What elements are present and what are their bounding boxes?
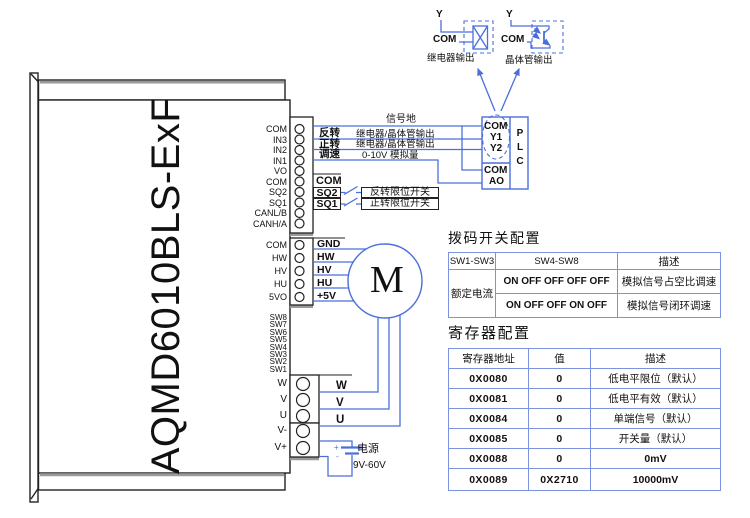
battery-minus-sign: - xyxy=(336,453,339,461)
reg-addr-2: 0X0084 xyxy=(449,409,529,429)
reg-header-address: 寄存器地址 xyxy=(449,349,529,369)
plc-ao-label: AO xyxy=(489,177,504,187)
reg-addr-0: 0X0080 xyxy=(449,369,529,389)
reg-val-2: 0 xyxy=(529,409,591,429)
hall-label-hv: HV xyxy=(317,265,332,276)
phase-label-v: V xyxy=(336,398,344,409)
pin-label-vo: VO xyxy=(240,166,287,176)
reverse-desc: 继电器/晶体管输出 xyxy=(356,129,435,140)
pin-label-sq2: SQ2 xyxy=(240,187,287,197)
reg-header-value: 值 xyxy=(529,349,591,369)
dip-cell-desc-row2: 模拟信号闭环调速 xyxy=(618,294,721,318)
signal-ground-label: 信号地 xyxy=(386,114,416,125)
dip-cell-sw-row1: ON OFF OFF OFF OFF xyxy=(496,270,618,294)
plc-com1-label: COM xyxy=(484,122,507,132)
plc-y1-label: Y1 xyxy=(490,133,502,143)
motor-letter: M xyxy=(370,261,400,299)
sq2-switch-desc: 反转限位开关 xyxy=(361,187,439,199)
dip-cell-desc-row1: 模拟信号占空比调速 xyxy=(618,270,721,294)
plc-com2-label: COM xyxy=(484,166,507,176)
pin-label-vminus: V- xyxy=(250,425,287,436)
com-wire-label: COM xyxy=(316,176,342,187)
dip-header-sw48: SW4-SW8 xyxy=(496,253,618,270)
reg-addr-3: 0X0085 xyxy=(449,429,529,449)
reg-val-4: 0 xyxy=(529,449,591,469)
device-model-label: AQMD6010BLS-ExF xyxy=(143,86,189,486)
pin-label-w: W xyxy=(250,378,287,389)
hall-label-5v: +5V xyxy=(317,291,336,302)
arrow-to-transistor xyxy=(501,69,519,111)
phase-wires xyxy=(319,316,400,427)
pin-label-canha: CANH/A xyxy=(240,219,287,229)
hall-label-hu: HU xyxy=(317,278,332,289)
dip-table: SW1-SW3 SW4-SW8 描述 额定电流 ON OFF OFF OFF O… xyxy=(448,252,721,318)
reg-val-0: 0 xyxy=(529,369,591,389)
pin-label-vplus: V+ xyxy=(250,442,287,453)
sq1-wire-label: SQ1 xyxy=(313,198,341,210)
transistor-com-label: COM xyxy=(501,35,524,45)
pin-label-5vo: 5VO xyxy=(240,292,287,302)
reg-addr-1: 0X0081 xyxy=(449,389,529,409)
reg-val-1: 0 xyxy=(529,389,591,409)
reg-addr-5: 0X0089 xyxy=(449,469,529,491)
pin-label-v: V xyxy=(250,394,287,405)
output-type-arrows xyxy=(478,69,519,111)
pin-label-hw: HW xyxy=(240,253,287,263)
reg-desc-2: 单端信号（默认） xyxy=(591,409,721,429)
forward-desc: 继电器/晶体管输出 xyxy=(356,139,435,150)
sq1-switch-desc: 正转限位开关 xyxy=(361,198,439,210)
pin-label-in3: IN3 xyxy=(240,135,287,145)
dip-header-sw13: SW1-SW3 xyxy=(449,253,496,270)
opto-light-arrow-1 xyxy=(535,29,541,34)
dip-table-title: 拨码开关配置 xyxy=(448,228,541,248)
pin-label-hv: HV xyxy=(240,266,287,276)
battery-plus-sign: + xyxy=(334,444,339,452)
transistor-y-label: Y xyxy=(506,10,513,20)
sq2-wire-label: SQ2 xyxy=(313,187,341,199)
reg-desc-3: 开关量（默认） xyxy=(591,429,721,449)
pin-label-sq1: SQ1 xyxy=(240,198,287,208)
reg-desc-5: 10000mV xyxy=(591,469,721,491)
reg-val-3: 0 xyxy=(529,429,591,449)
dip-cell-rated-current: 额定电流 xyxy=(449,270,496,318)
relay-y-label: Y xyxy=(436,10,443,20)
pin-label-com3: COM xyxy=(240,240,287,250)
reg-header-desc: 描述 xyxy=(591,349,721,369)
reg-table-title: 寄存器配置 xyxy=(448,322,531,343)
phase-label-u: U xyxy=(336,415,344,426)
power-range-label: 9V-60V xyxy=(353,460,386,471)
phase-label-w: W xyxy=(336,381,347,392)
reg-addr-4: 0X0088 xyxy=(449,449,529,469)
pin-label-sw1: SW1 xyxy=(255,366,287,374)
dip-cell-sw-row2: ON OFF OFF ON OFF xyxy=(496,294,618,318)
plc-y2-label: Y2 xyxy=(490,144,502,154)
reg-desc-1: 低电平有效（默认） xyxy=(591,389,721,409)
pin-label-u: U xyxy=(250,410,287,421)
pin-label-in1: IN1 xyxy=(240,156,287,166)
register-table: 寄存器地址 值 描述 0X0080 0 低电平限位（默认） 0X0081 0 低… xyxy=(448,348,721,491)
relay-coil-cross xyxy=(473,26,488,49)
pin-label-in2: IN2 xyxy=(240,145,287,155)
transistor-output-caption: 晶体管输出 xyxy=(505,55,553,66)
arrow-to-relay xyxy=(478,69,495,111)
pin-label-canlb: CANL/B xyxy=(240,208,287,218)
relay-output-caption: 继电器输出 xyxy=(427,53,475,64)
plc-letter-l: L xyxy=(514,143,526,153)
limit-switch-sq1 xyxy=(341,198,361,206)
plc-letter-c: C xyxy=(514,157,526,167)
reg-desc-4: 0mV xyxy=(591,449,721,469)
pin-label-com1: COM xyxy=(240,124,287,134)
speed-label: 调速 xyxy=(319,149,340,160)
reg-desc-0: 低电平限位（默认） xyxy=(591,369,721,389)
hall-label-gnd: GND xyxy=(317,239,340,250)
dip-header-desc: 描述 xyxy=(618,253,721,270)
plc-letter-p: P xyxy=(514,129,526,139)
pin-label-hu: HU xyxy=(240,279,287,289)
opto-light-arrow-2 xyxy=(534,34,540,39)
relay-com-label: COM xyxy=(433,35,456,45)
limit-switch-sq2 xyxy=(341,187,361,195)
pin-label-com2: COM xyxy=(240,177,287,187)
wire-com-branch xyxy=(462,126,482,170)
wiring-diagram-page: AQMD6010BLS-ExF COM IN3 IN2 IN1 VO COM S… xyxy=(0,0,750,518)
speed-desc: 0-10V 模拟量 xyxy=(362,150,419,161)
chassis-plate xyxy=(30,73,38,502)
reg-val-5: 0X2710 xyxy=(529,469,591,491)
hall-label-hw: HW xyxy=(317,252,335,263)
power-label: 电源 xyxy=(357,444,379,455)
